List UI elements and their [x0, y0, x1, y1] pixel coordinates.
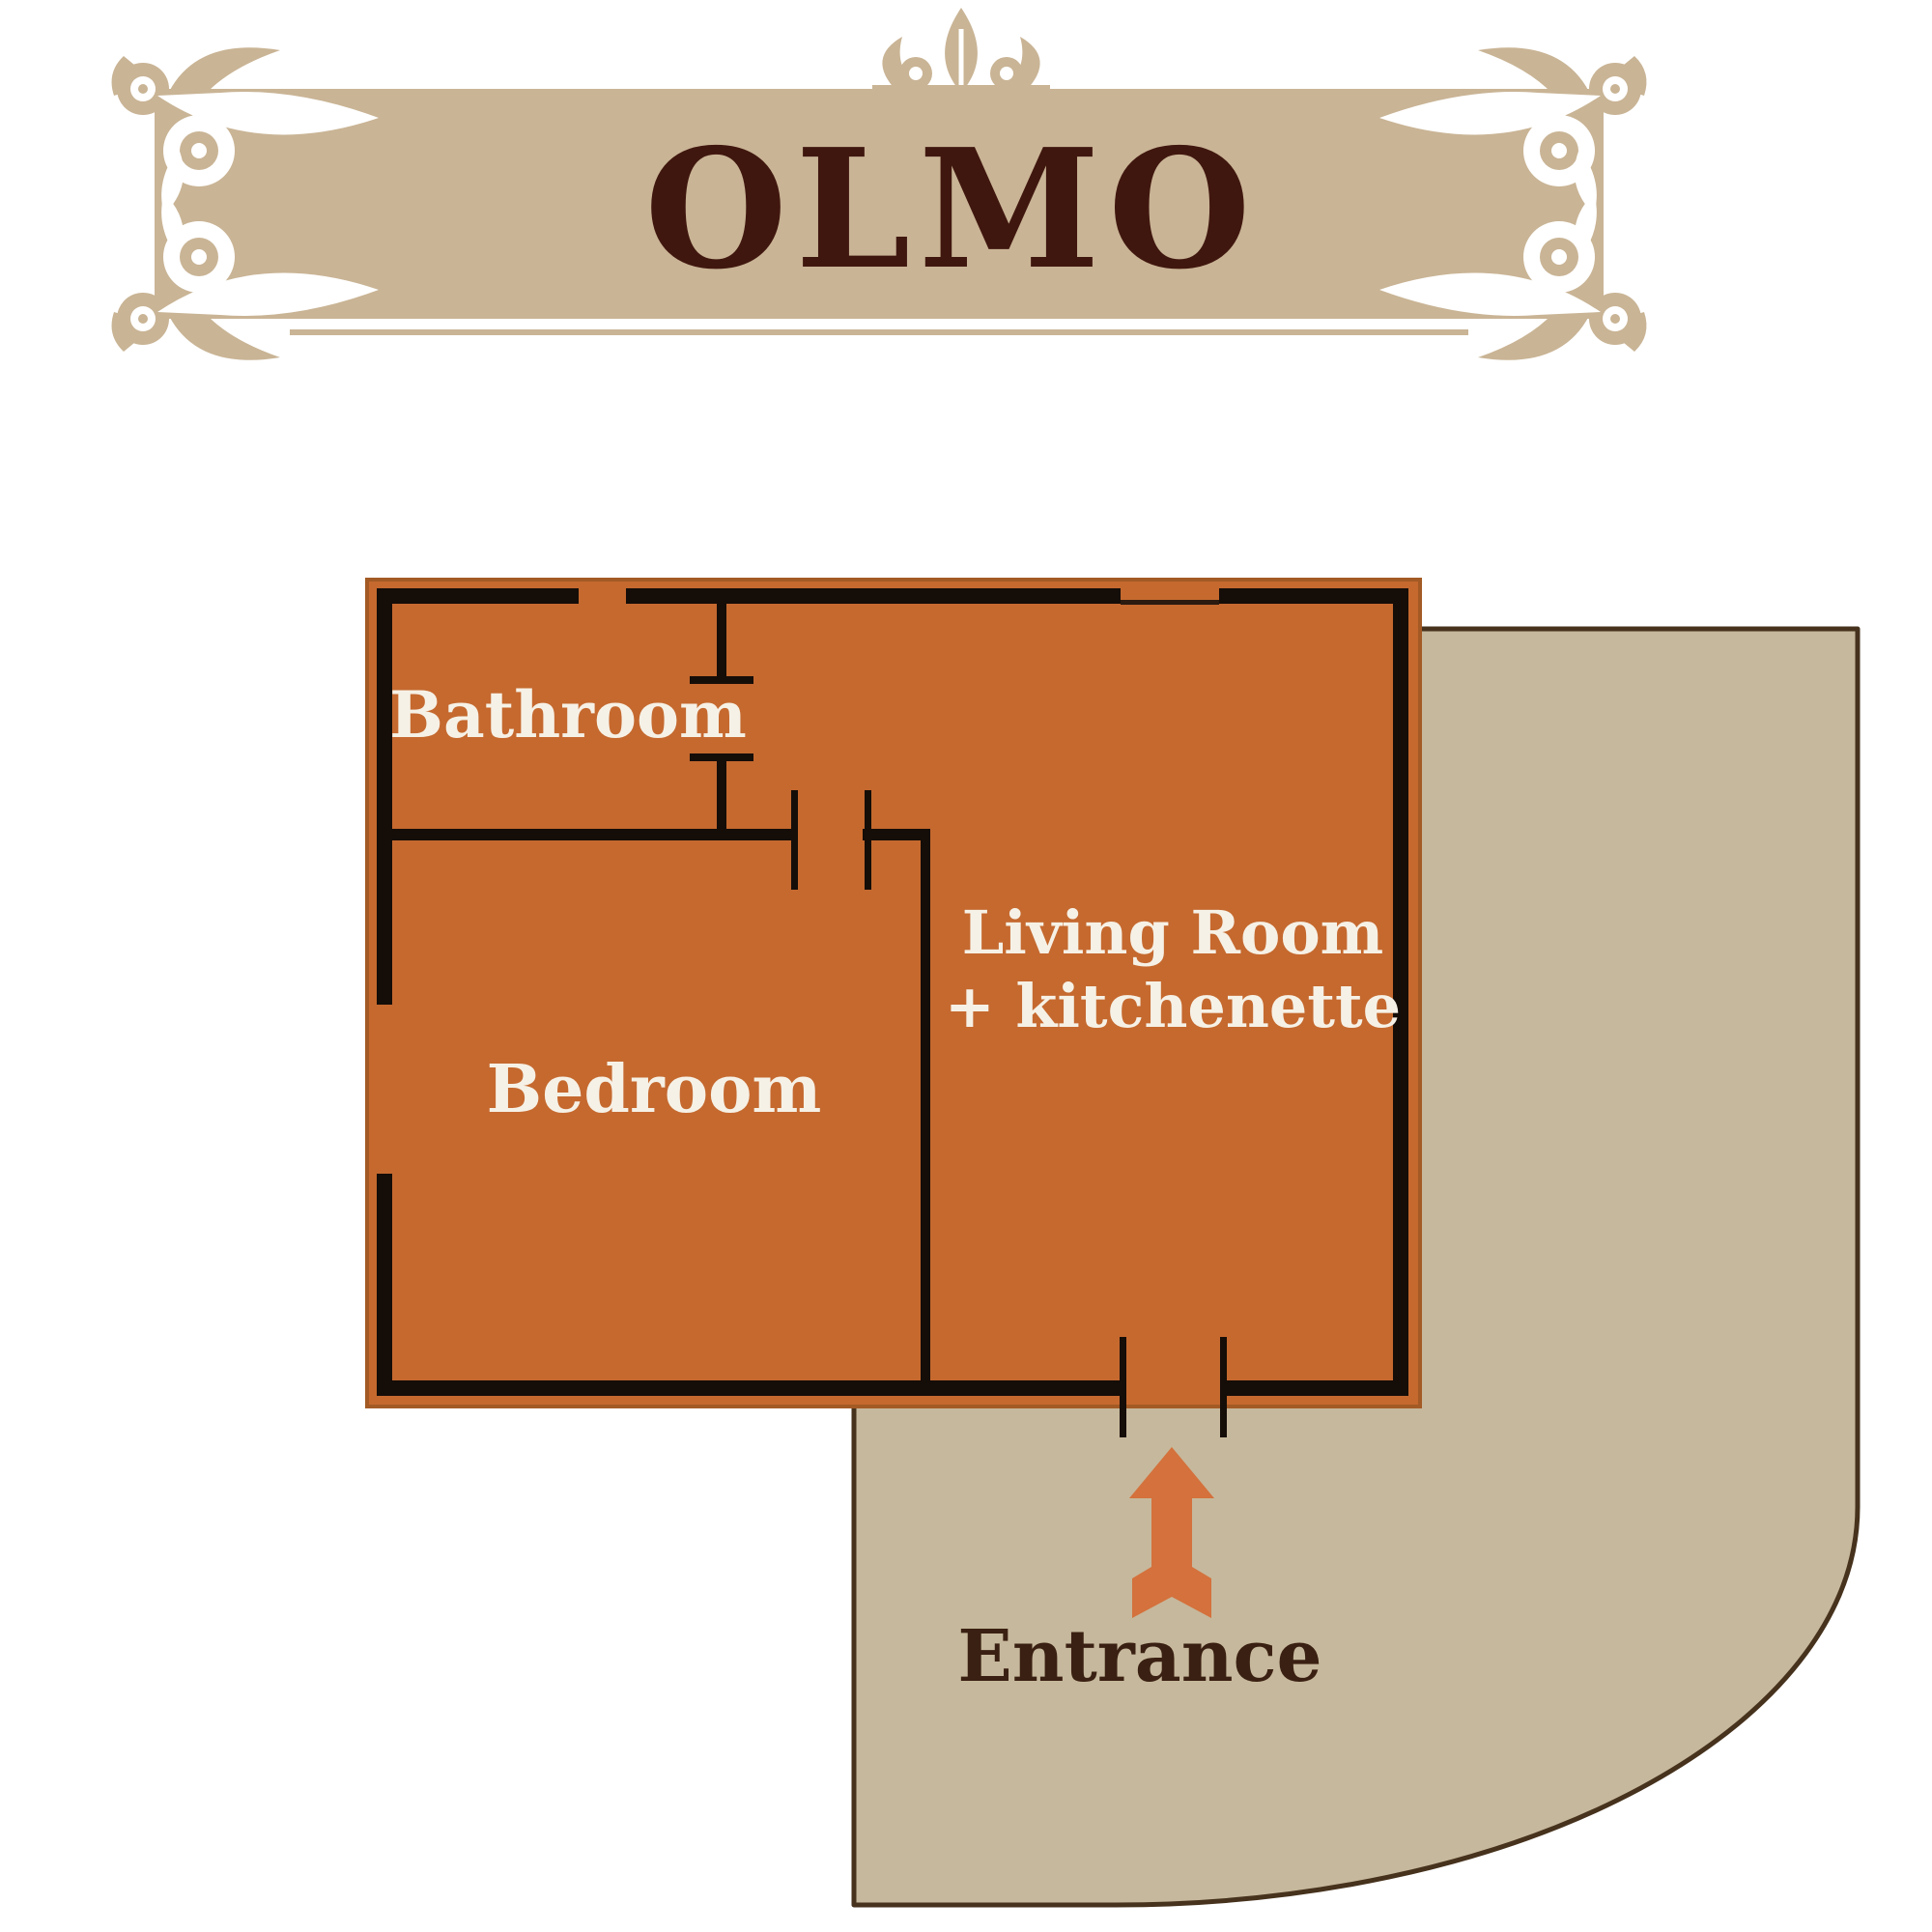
wall-bottom-segment	[1227, 1380, 1408, 1396]
living-room-label-line1: Living Room	[945, 896, 1401, 970]
bedroom-door-jamb	[791, 790, 798, 890]
window-sill-line	[1121, 600, 1219, 605]
entrance-door-jamb	[1120, 1337, 1126, 1437]
fleur-de-lis-icon	[872, 8, 1050, 93]
room-label-bathroom: Bathroom	[389, 677, 747, 753]
bedroom-living-divider-wall	[921, 829, 930, 1380]
wall-top-segment	[1219, 588, 1408, 604]
wall-left-segment	[377, 1174, 392, 1396]
entrance-label: Entrance	[957, 1615, 1321, 1698]
entrance-door-jamb	[1220, 1337, 1227, 1437]
page-title: OLMO	[644, 124, 1259, 297]
room-label-living-room: Living Room + kitchenette	[945, 896, 1401, 1043]
room-label-bedroom: Bedroom	[487, 1051, 822, 1128]
wall-bottom-segment	[377, 1380, 1120, 1396]
wall-top-segment	[377, 588, 579, 604]
floor-plan-page: OLMO Bathroom Bedroom Living Room + kitc…	[0, 0, 1932, 1932]
bathroom-wall-lower	[717, 761, 726, 835]
bathroom-door-jamb	[690, 753, 753, 761]
wall-top-segment	[626, 588, 1121, 604]
wall-left-segment	[377, 588, 392, 1005]
bathroom-bottom-wall	[392, 829, 795, 840]
living-room-label-line2: + kitchenette	[945, 970, 1401, 1043]
bathroom-wall-upper	[717, 604, 726, 676]
